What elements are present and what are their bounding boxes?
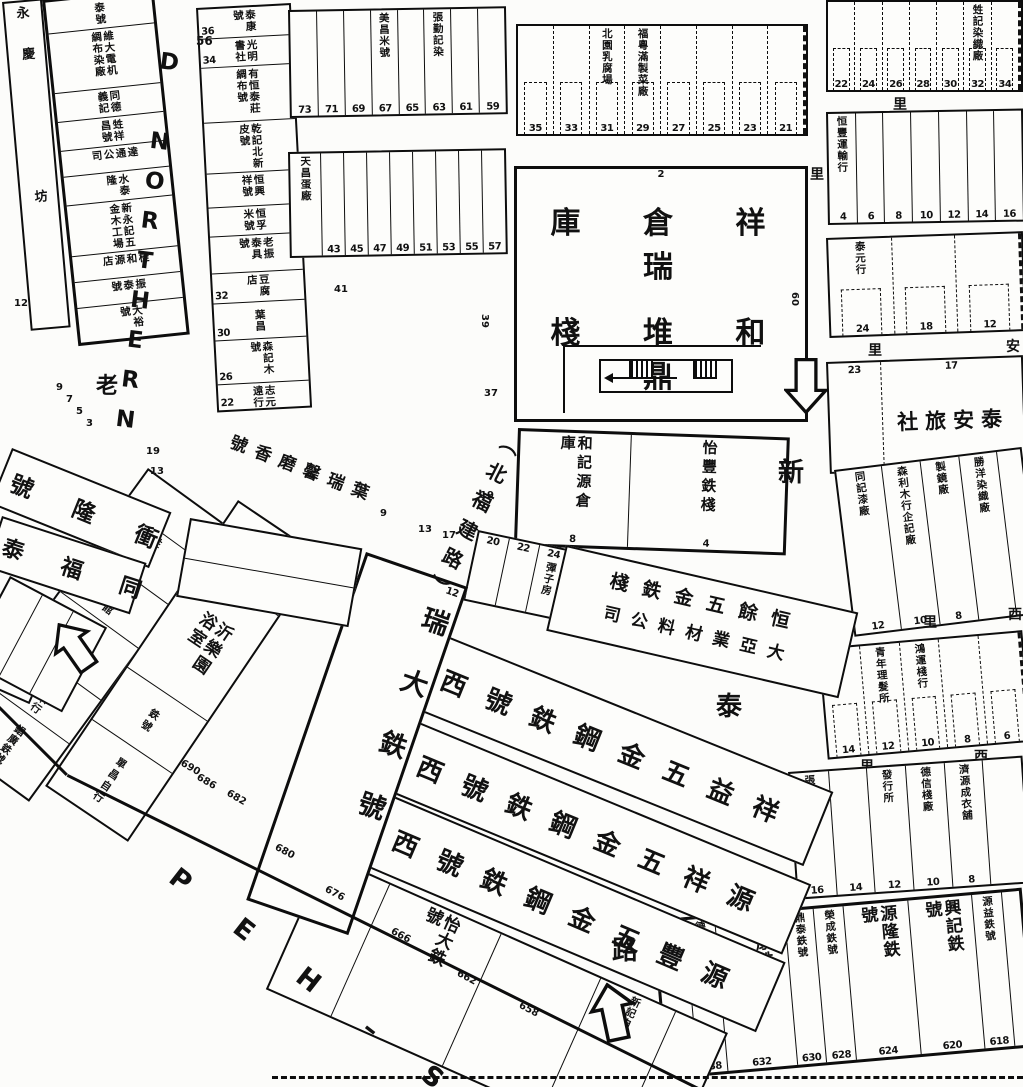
lot: 53	[436, 151, 461, 253]
lot: 49	[390, 152, 415, 254]
lot-name: 鉄號	[137, 707, 162, 736]
lot-name: 甡記染織廠	[972, 4, 984, 62]
lot: 16	[994, 111, 1023, 220]
lot-number: 67	[379, 103, 392, 114]
lot: 8	[883, 113, 913, 222]
lot-name: 濟源成衣舖	[957, 763, 973, 821]
lot-name: 泰號	[93, 2, 107, 26]
lot: 恒豐運輸行 4	[828, 113, 858, 222]
gate-arrow-left-icon	[607, 377, 677, 379]
lot: 12	[939, 112, 969, 221]
lot: 怡豐鉄棧 4	[628, 435, 786, 552]
lot: 65	[398, 10, 427, 114]
block-row-73-59: 73 71 69 美昌米號 67 65 張勤記染 63 61 59	[288, 6, 508, 118]
gate-hatch	[693, 359, 717, 379]
lot-number: 31	[600, 123, 613, 134]
lot-number: 14	[842, 744, 856, 756]
lot-name: 沂樂園浴室	[170, 607, 235, 678]
lot: 33	[554, 26, 590, 134]
lot: 23	[733, 26, 769, 134]
lot-number: 18	[920, 321, 933, 332]
lot: 51	[413, 151, 438, 253]
lot-name: 甡祥昌號	[99, 118, 126, 146]
lot: 71	[317, 11, 346, 115]
lot-number: 24	[862, 79, 875, 90]
lot-name: 美昌米號	[378, 12, 391, 58]
lot-name: 豆腐店	[246, 274, 271, 302]
yeh-shop-label: 號香磨馨瑞葉	[227, 428, 382, 507]
lot-name: 恒孚米號	[242, 207, 267, 235]
lot-name: 泰元行	[853, 241, 866, 276]
lot-number: 4	[840, 212, 847, 223]
lot-number: 69	[352, 104, 365, 115]
lot-name: 同德義記	[96, 90, 123, 118]
lot-number: 8	[968, 874, 975, 885]
lot: 美昌米號 67	[371, 10, 400, 114]
lot-number: 17	[945, 360, 958, 371]
block-e7: 張氏運輸行 16 14 發行所 12 德信棧廠 10 濟源成衣舖 8	[788, 756, 1023, 900]
lot-number: 33	[565, 123, 578, 134]
street-number: 3	[86, 418, 93, 429]
shop-name: 興記鉄號	[921, 898, 964, 961]
warehouse-name-line1: 庫 倉 祥 瑞	[517, 198, 805, 286]
shop-number: 620	[942, 1039, 962, 1052]
shop-number: 624	[878, 1045, 898, 1058]
block-e1: 22 24 26 28 30 甡記染織廠 32 34	[826, 0, 1023, 92]
street-number: 19	[146, 446, 160, 457]
lot-number: 8	[964, 734, 971, 746]
lot-number: 32	[215, 291, 228, 303]
shop-number: 630	[802, 1052, 822, 1065]
lot-number: 47	[373, 243, 386, 254]
lot: 泰元行 24	[828, 238, 895, 336]
lot-number: 32	[971, 79, 984, 90]
lot: 25	[697, 26, 733, 134]
street-number: 12	[14, 298, 28, 309]
lot-number: 34	[203, 55, 216, 67]
lot-name: 勝洋染織廠	[972, 456, 991, 515]
lot-number: 14	[849, 882, 863, 894]
block-e3: 泰元行 24 18 12	[826, 231, 1023, 338]
lot-name: 天昌蛋廠	[299, 156, 312, 202]
lot: 24	[855, 2, 882, 90]
street-number: 60	[789, 292, 800, 306]
lot-number: 12	[983, 319, 996, 330]
lot-number: 29	[636, 123, 649, 134]
street-number: 13	[150, 466, 164, 477]
lot-name: 福粵滿製菜廠	[637, 28, 649, 97]
char-qing: 慶	[17, 46, 37, 61]
lot: 志元遠行 22	[218, 381, 310, 411]
lot-name: 怡大鉄號	[403, 903, 462, 973]
lot-number: 24	[856, 324, 869, 335]
row-cells: 恒豐運輸行 4 6 8 10 12 14 16	[828, 111, 1023, 223]
lot-number: 8	[895, 211, 902, 222]
lot-name: 恒興祥號	[240, 174, 266, 205]
lot-number: 22	[516, 542, 531, 555]
lot-number: 59	[486, 101, 499, 112]
lot-number: 61	[459, 102, 472, 113]
lot-name: 有恒泰莊綢布號	[235, 68, 262, 121]
lot: 葉昌 30	[214, 300, 307, 342]
lot-name: 青年理髮所	[873, 646, 890, 704]
street-number: 9	[56, 382, 63, 393]
lot-number: 2	[517, 169, 805, 180]
lot-number: 53	[442, 242, 455, 253]
lot-number: 34	[998, 79, 1011, 90]
lot-name: 森利木行企記廠	[895, 465, 917, 546]
lot: 有恒泰莊綢布號	[201, 64, 295, 123]
street-number: 13	[418, 524, 432, 535]
shop-number: 632	[752, 1056, 772, 1069]
lot-name: 同記漆廠	[853, 470, 871, 517]
lot: 乾記北新皮號	[204, 119, 298, 175]
lot: 26	[883, 2, 910, 90]
lot: 28	[910, 2, 937, 90]
lot-number: 12	[947, 210, 960, 221]
lot: 73	[290, 11, 319, 115]
lot-number: 65	[406, 103, 419, 114]
lot-number: 14	[975, 209, 988, 220]
lot-name: 泰康號	[232, 9, 257, 37]
lot: 恒興祥號	[207, 170, 300, 208]
lot-number: 20	[485, 535, 500, 548]
lot: 10	[911, 112, 941, 221]
lot-name: 志元遠行	[251, 384, 276, 408]
block-hengyu-hardware: 棧鉄金五餘恒 司公料材業亞大	[546, 545, 858, 698]
street-number: 682	[225, 788, 249, 808]
lot-number: 4	[702, 539, 709, 550]
block-warehouse-south: 和記源倉庫 8 怡豐鉄棧 4	[514, 428, 790, 555]
char-li: 里	[923, 612, 937, 632]
row-cells: 張氏運輸行 16 14 發行所 12 德信棧廠 10 濟源成衣舖 8	[790, 758, 1023, 898]
shop-name: 源益鉄號	[981, 895, 997, 942]
lot: 69	[344, 11, 373, 115]
lot-number: 26	[219, 372, 232, 384]
row-cells: 35 33 北園乳腐場 31 福粵滿製菜廠 29 27 25 23	[518, 26, 806, 134]
street-number: 17	[442, 530, 456, 541]
lot: 35	[518, 26, 554, 134]
lot-number: 22	[835, 79, 848, 90]
lot-number: 73	[298, 105, 311, 116]
warehouse-gate	[563, 345, 761, 413]
lot-number: 10	[926, 877, 940, 889]
char-xi: 西	[1008, 604, 1022, 624]
lot-number: 12	[871, 620, 885, 632]
lot-name: 發行所	[880, 769, 894, 804]
lot-number: 23	[848, 365, 861, 376]
char-yong: 永	[4, 1, 42, 23]
lot: 34	[992, 2, 1021, 90]
lot-name: 維大電机綢布染廠	[90, 30, 120, 89]
row-cells: 43 45 47 49 51 53 55 57	[321, 150, 506, 255]
lot-number: 26	[889, 79, 902, 90]
street-number: 5	[76, 406, 83, 417]
row-cells: 73 71 69 美昌米號 67 65 張勤記染 63 61 59	[290, 8, 506, 116]
hotel-name: 社旅安泰	[897, 403, 1010, 437]
block-row-35-21: 35 33 北園乳腐場 31 福粵滿製菜廠 29 27 25 23	[516, 24, 808, 136]
lot-number: 10	[921, 737, 935, 749]
lot-name: 單昌自行	[89, 755, 129, 806]
lot: 6	[856, 113, 886, 222]
hotel-sublot: 23	[828, 362, 885, 472]
lot-number: 21	[779, 123, 792, 134]
lot: 北園乳腐場 31	[590, 26, 626, 134]
char-fang: 坊	[29, 189, 49, 204]
lot: 維大電机綢布染廠	[49, 24, 161, 95]
lot-number: 24	[546, 548, 561, 561]
lot-name: 森記木號	[249, 340, 275, 382]
row-cells: 同記漆廠 12 森利木行企記廠 10 製鏡廠 8 勝洋染織廠	[836, 449, 1023, 634]
lot-name: 葉昌	[253, 309, 266, 333]
street-sintai-char-3: 路	[612, 930, 638, 967]
lot: 61	[451, 9, 480, 113]
lot: 恒孚米號	[209, 204, 301, 238]
lot-name: 和記源倉庫	[556, 434, 593, 521]
lot: 豆腐店 32	[212, 270, 304, 304]
lot-number: 12	[888, 879, 902, 891]
block-row-43-57: 天昌蛋廠 43 45 47 49 51 53 55 5	[288, 148, 508, 258]
lot-number: 49	[396, 243, 409, 254]
lot-number: 28	[917, 79, 930, 90]
street-number: 19	[480, 490, 494, 501]
lot-name: 乾記北新皮號	[238, 123, 264, 172]
lot-number: 43	[327, 244, 340, 255]
shop-name: 榮成鉄號	[823, 909, 839, 956]
lot-name: 光明書社	[233, 39, 258, 67]
lot-number: 16	[810, 885, 824, 897]
street-number: 7	[66, 394, 73, 405]
lot-number: 30	[944, 79, 957, 90]
lot: 12	[955, 233, 1023, 331]
lot: 21	[768, 26, 806, 134]
lot-number: 35	[529, 123, 542, 134]
block-e2: 恒豐運輸行 4 6 8 10 12 14 16	[826, 109, 1023, 225]
lot: 47	[367, 152, 392, 254]
lot: 27	[661, 26, 697, 134]
lot-name: 製鏡廠	[934, 460, 950, 496]
lot-number: 8	[569, 534, 576, 545]
block-warehouse: 2 庫 倉 祥 瑞 棧 堆 和 鼎	[514, 166, 808, 422]
shop-number: 628	[831, 1049, 851, 1062]
historical-street-map: 永 慶 坊 泰號 維大電机綢布染廠 同德義記 甡祥昌號 達通公司 水泰隆 新永記…	[0, 0, 1023, 1087]
lot: 張勤記染 63	[424, 9, 453, 113]
lot: 森記木號 26	[215, 337, 308, 386]
lot-number: 63	[432, 102, 445, 113]
map-bottom-edge	[272, 1076, 1023, 1079]
shop-name: 源隆鉄號	[857, 904, 900, 967]
lot-tianchang: 天昌蛋廠	[290, 153, 323, 256]
street-number: 686	[195, 772, 219, 792]
lot-number: 12	[881, 741, 895, 753]
lot-number: 23	[743, 123, 756, 134]
lot: 22	[828, 2, 855, 90]
row-wrap: 天昌蛋廠 43 45 47 49 51 53 55 5	[290, 150, 506, 256]
direction-arrow-down-icon	[784, 356, 828, 416]
lot: 45	[344, 153, 369, 255]
lot-number: 6	[1003, 731, 1010, 743]
street-number: 56	[196, 34, 213, 48]
lot-name: 鴻運棧行	[913, 643, 929, 690]
lot-name: 老振泰具號	[238, 237, 276, 273]
lot-number: 16	[1003, 209, 1016, 220]
lot-number: 30	[217, 328, 230, 340]
lot-number: 57	[488, 241, 501, 252]
gate-hatch	[629, 359, 653, 379]
lot-number: 10	[920, 210, 933, 221]
lot-number: 27	[672, 123, 685, 134]
lot: 43	[321, 153, 346, 255]
gate-structure	[599, 359, 733, 393]
street-number: 41	[334, 284, 348, 295]
street-number: 37	[484, 388, 498, 399]
lot: 光明書社 34	[200, 35, 292, 69]
row-cells: 和記源倉庫 8 怡豐鉄棧 4	[517, 431, 787, 552]
street-number: 9	[380, 508, 387, 519]
lot-name: 怡豐鉄棧	[698, 439, 718, 526]
lot: 甡記染織廠 32	[964, 2, 991, 90]
street-sintai-char-2: 泰	[716, 686, 742, 723]
char-an: 安	[1006, 336, 1020, 356]
lot: 14	[967, 111, 997, 220]
lot-number: 6	[868, 211, 875, 222]
row-cells: 14 青年理髮所 12 鴻運棧行 10 8 6	[820, 632, 1023, 757]
lot: 55	[459, 151, 484, 253]
lot-name: 新永記五金木工場	[108, 202, 137, 252]
street-old-char: 老	[96, 368, 118, 400]
lot-name: 德信棧廠	[919, 766, 934, 813]
block-e5: 同記漆廠 12 森利木行企記廠 10 製鏡廠 8 勝洋染織廠	[834, 447, 1023, 637]
char-li: 里	[868, 340, 882, 360]
street-number: 39	[479, 314, 490, 328]
street-sintai-char-1: 新	[778, 452, 804, 489]
lot-name: 張勤記染	[431, 11, 444, 57]
lot-number: 51	[419, 242, 432, 253]
lot-number: 45	[350, 244, 363, 255]
lot: 59	[478, 8, 506, 112]
char-li: 里	[810, 164, 824, 184]
lot-number: 55	[465, 242, 478, 253]
lot-number: 25	[708, 123, 721, 134]
lot-number: 8	[955, 611, 963, 623]
lot: 57	[482, 150, 506, 252]
lot-number: 71	[325, 104, 338, 115]
lot-name: 水泰隆	[105, 173, 132, 201]
lot-name: 恒豐運輸行	[835, 116, 848, 174]
lot-name: 北園乳腐場	[601, 28, 613, 86]
shop-number: 618	[989, 1035, 1009, 1048]
lot: 和記源倉庫 8	[517, 431, 632, 547]
row-cells: 泰元行 24 18 12	[828, 233, 1023, 336]
lot: 18	[892, 235, 959, 333]
lot: 30	[937, 2, 964, 90]
lot: 福粵滿製菜廠 29	[625, 26, 661, 134]
row-cells: 22 24 26 28 30 甡記染織廠 32 34	[828, 2, 1021, 90]
lot-number: 22	[220, 398, 233, 410]
